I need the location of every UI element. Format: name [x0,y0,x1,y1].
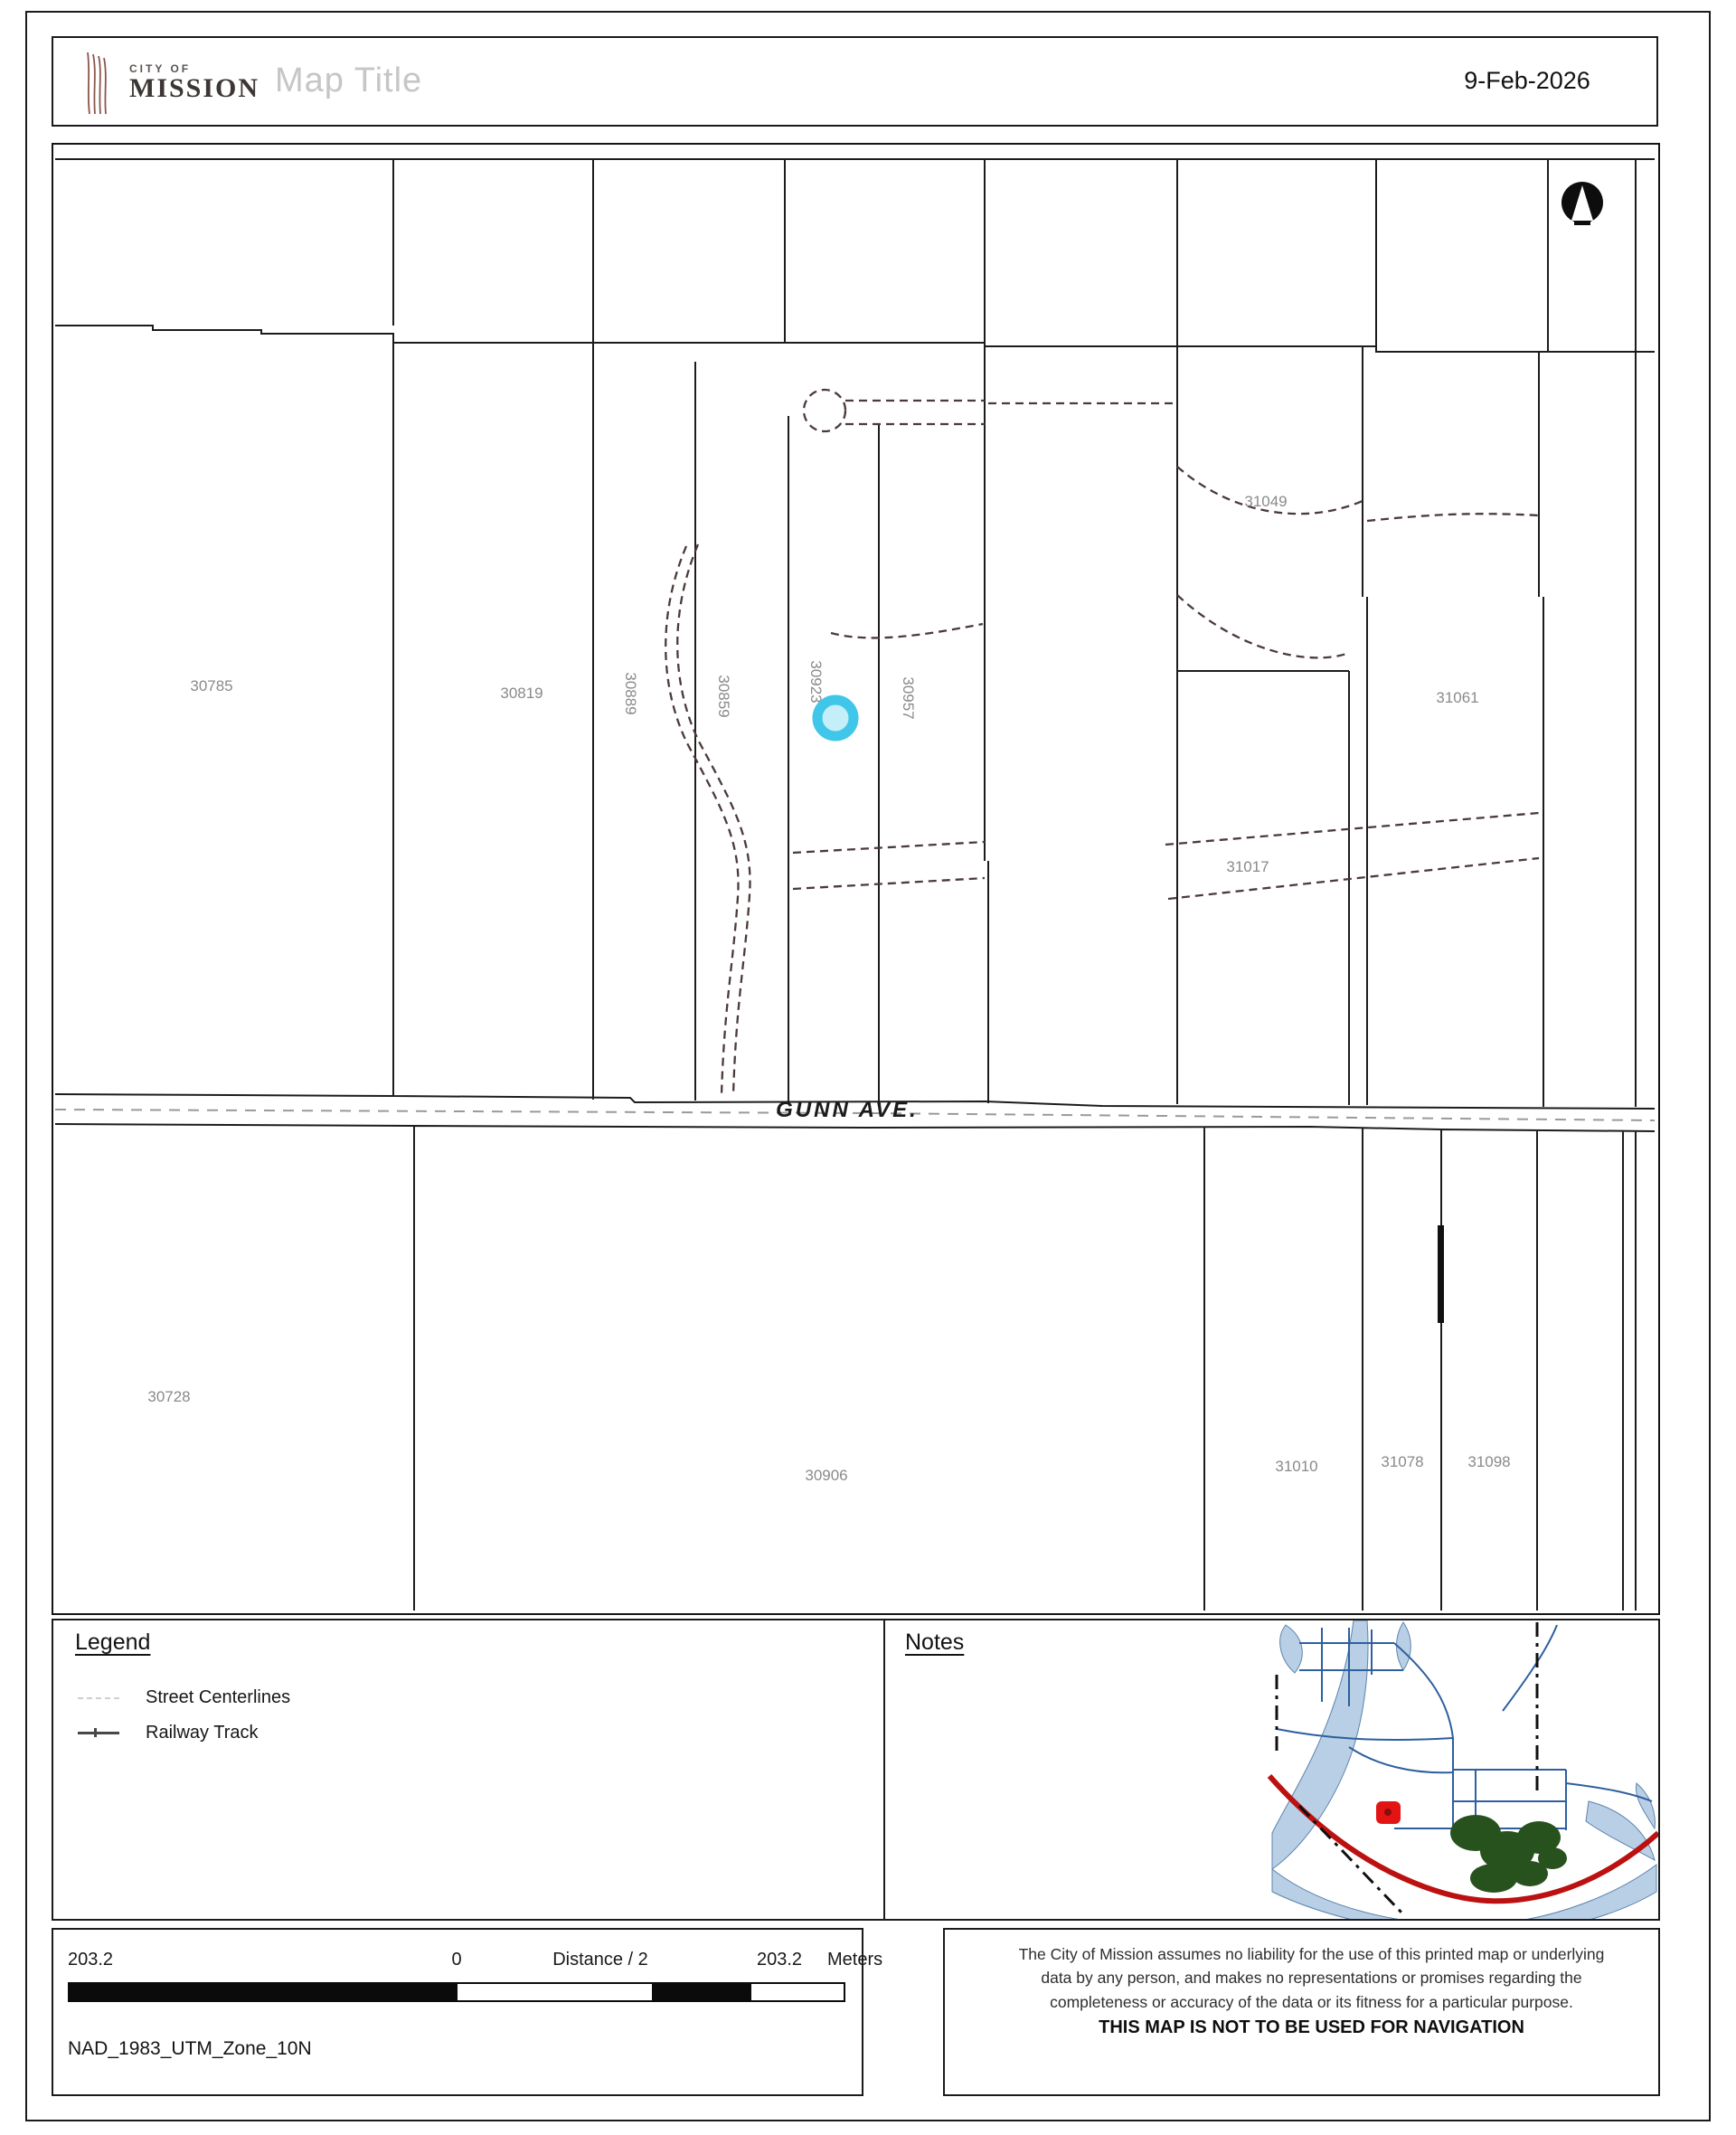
reeds-logo-icon [82,49,120,116]
notes-heading: Notes [905,1630,964,1656]
logo-wordmark: CITY OF MISSION [129,62,259,102]
street-label: GUNN AVE. [776,1098,919,1122]
parcel-label-30889: 30889 [622,672,639,714]
parcel-label-30906: 30906 [805,1467,847,1484]
legend-item: Street Centerlines [75,1687,290,1708]
railway-track-icon [75,1732,122,1734]
inset-map-canvas [1268,1620,1658,1919]
legend-item: Railway Track [75,1723,290,1743]
scale-segment [654,1982,750,2002]
legend-item-label: Street Centerlines [146,1687,290,1708]
map-canvas: 3078530819308893085930923309573104931061… [53,145,1657,1612]
header-bar: CITY OF MISSION Map Title 9-Feb-2026 [52,36,1658,127]
inset-overview-map [1268,1620,1658,1919]
parcel-label-31010: 31010 [1275,1458,1317,1475]
map-title: Map Title [275,61,422,100]
parcel-labels: 3078530819308893085930923309573104931061… [147,493,1510,1484]
legend-heading: Legend [75,1630,150,1656]
parcel-label-30957: 30957 [900,676,917,719]
parcel-label-30819: 30819 [500,685,542,702]
map-print-page: CITY OF MISSION Map Title 9-Feb-2026 307… [0,0,1736,2135]
inset-greens [1450,1815,1567,1893]
thick-boundary-segment [1438,1225,1444,1323]
parcel-label-30859: 30859 [715,675,732,717]
map-date: 9-Feb-2026 [1392,67,1663,95]
location-marker [817,700,854,736]
disclaimer-line-3: completeness or accuracy of the data or … [981,1990,1642,2014]
parcel-label-30785: 30785 [190,677,232,694]
scale-right-value: 203.2 [748,1950,811,1970]
parcel-label-30728: 30728 [147,1388,190,1405]
disclaimer-panel: The City of Mission assumes no liability… [943,1928,1660,2096]
scale-segment [750,1982,845,2002]
parcel-label-31017: 31017 [1226,858,1269,875]
logo-mission: MISSION [129,75,259,102]
scale-segment [68,1982,456,2002]
scale-zero-label: 0 [448,1950,466,1970]
map-frame: 3078530819308893085930923309573104931061… [52,143,1660,1615]
parcel-label-31098: 31098 [1467,1453,1510,1470]
parcel-label-30923: 30923 [807,660,825,703]
legend-item-label: Railway Track [146,1723,258,1743]
inset-location-marker [1376,1801,1401,1824]
scale-bar [68,1982,845,2002]
scale-segment [456,1982,654,2002]
parcel-label-31061: 31061 [1436,689,1478,706]
panel-divider [883,1620,885,1919]
parcel-label-31049: 31049 [1244,493,1287,510]
disclaimer-warning: THIS MAP IS NOT TO BE USED FOR NAVIGATIO… [981,2017,1642,2038]
city-logo: CITY OF MISSION [82,49,259,116]
disclaimer-line-2: data by any person, and makes no represe… [981,1966,1642,1989]
disclaimer-line-1: The City of Mission assumes no liability… [981,1942,1642,1966]
parcel-label-31078: 31078 [1381,1453,1423,1470]
legend-notes-panel: Legend Street CenterlinesRailway Track N… [52,1619,1660,1921]
north-arrow-icon [1561,182,1603,225]
street-centerline-icon [75,1697,122,1699]
legend-items: Street CenterlinesRailway Track [75,1673,290,1743]
street-centerlines [665,390,1539,1095]
scale-left-value: 203.2 [68,1950,113,1970]
scale-units: Meters [827,1950,882,1970]
datum-label: NAD_1983_UTM_Zone_10N [68,2038,312,2060]
scale-division-label: Distance / 2 [533,1950,668,1970]
scalebar-panel: 203.2 0 Distance / 2 203.2 Meters NAD_19… [52,1928,863,2096]
